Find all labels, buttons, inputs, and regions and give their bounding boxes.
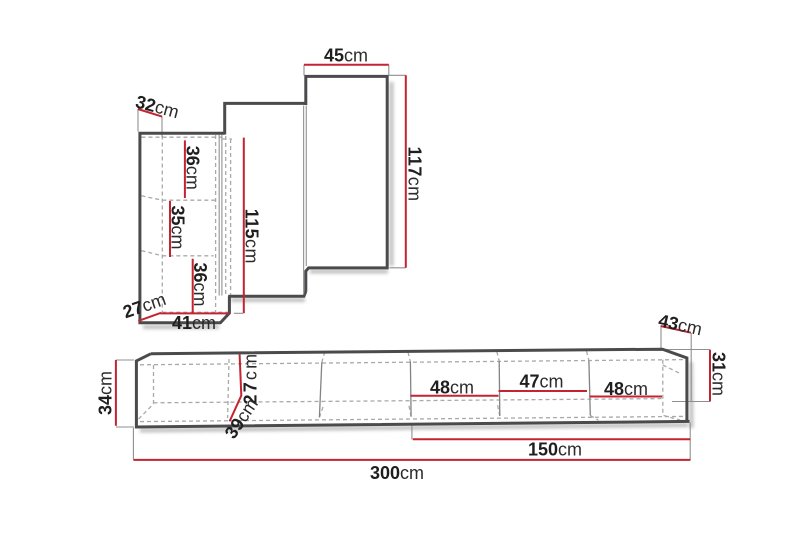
svg-text:300cm: 300cm: [370, 463, 424, 483]
svg-text:115cm: 115cm: [242, 209, 262, 264]
svg-text:117cm: 117cm: [404, 147, 424, 202]
svg-text:32cm: 32cm: [133, 92, 181, 123]
svg-text:36cm: 36cm: [190, 263, 210, 307]
svg-text:48cm: 48cm: [430, 378, 474, 398]
svg-text:43cm: 43cm: [657, 310, 704, 339]
svg-text:45cm: 45cm: [324, 46, 368, 66]
svg-text:41cm: 41cm: [172, 313, 216, 333]
svg-text:150cm: 150cm: [528, 440, 582, 460]
svg-text:36cm: 36cm: [183, 146, 203, 190]
svg-text:27cm: 27cm: [120, 289, 168, 322]
svg-text:48cm: 48cm: [604, 379, 648, 399]
svg-text:31cm: 31cm: [708, 352, 728, 396]
svg-text:34cm: 34cm: [96, 371, 116, 415]
svg-text:47cm: 47cm: [520, 372, 564, 392]
svg-text:35cm: 35cm: [168, 206, 188, 250]
